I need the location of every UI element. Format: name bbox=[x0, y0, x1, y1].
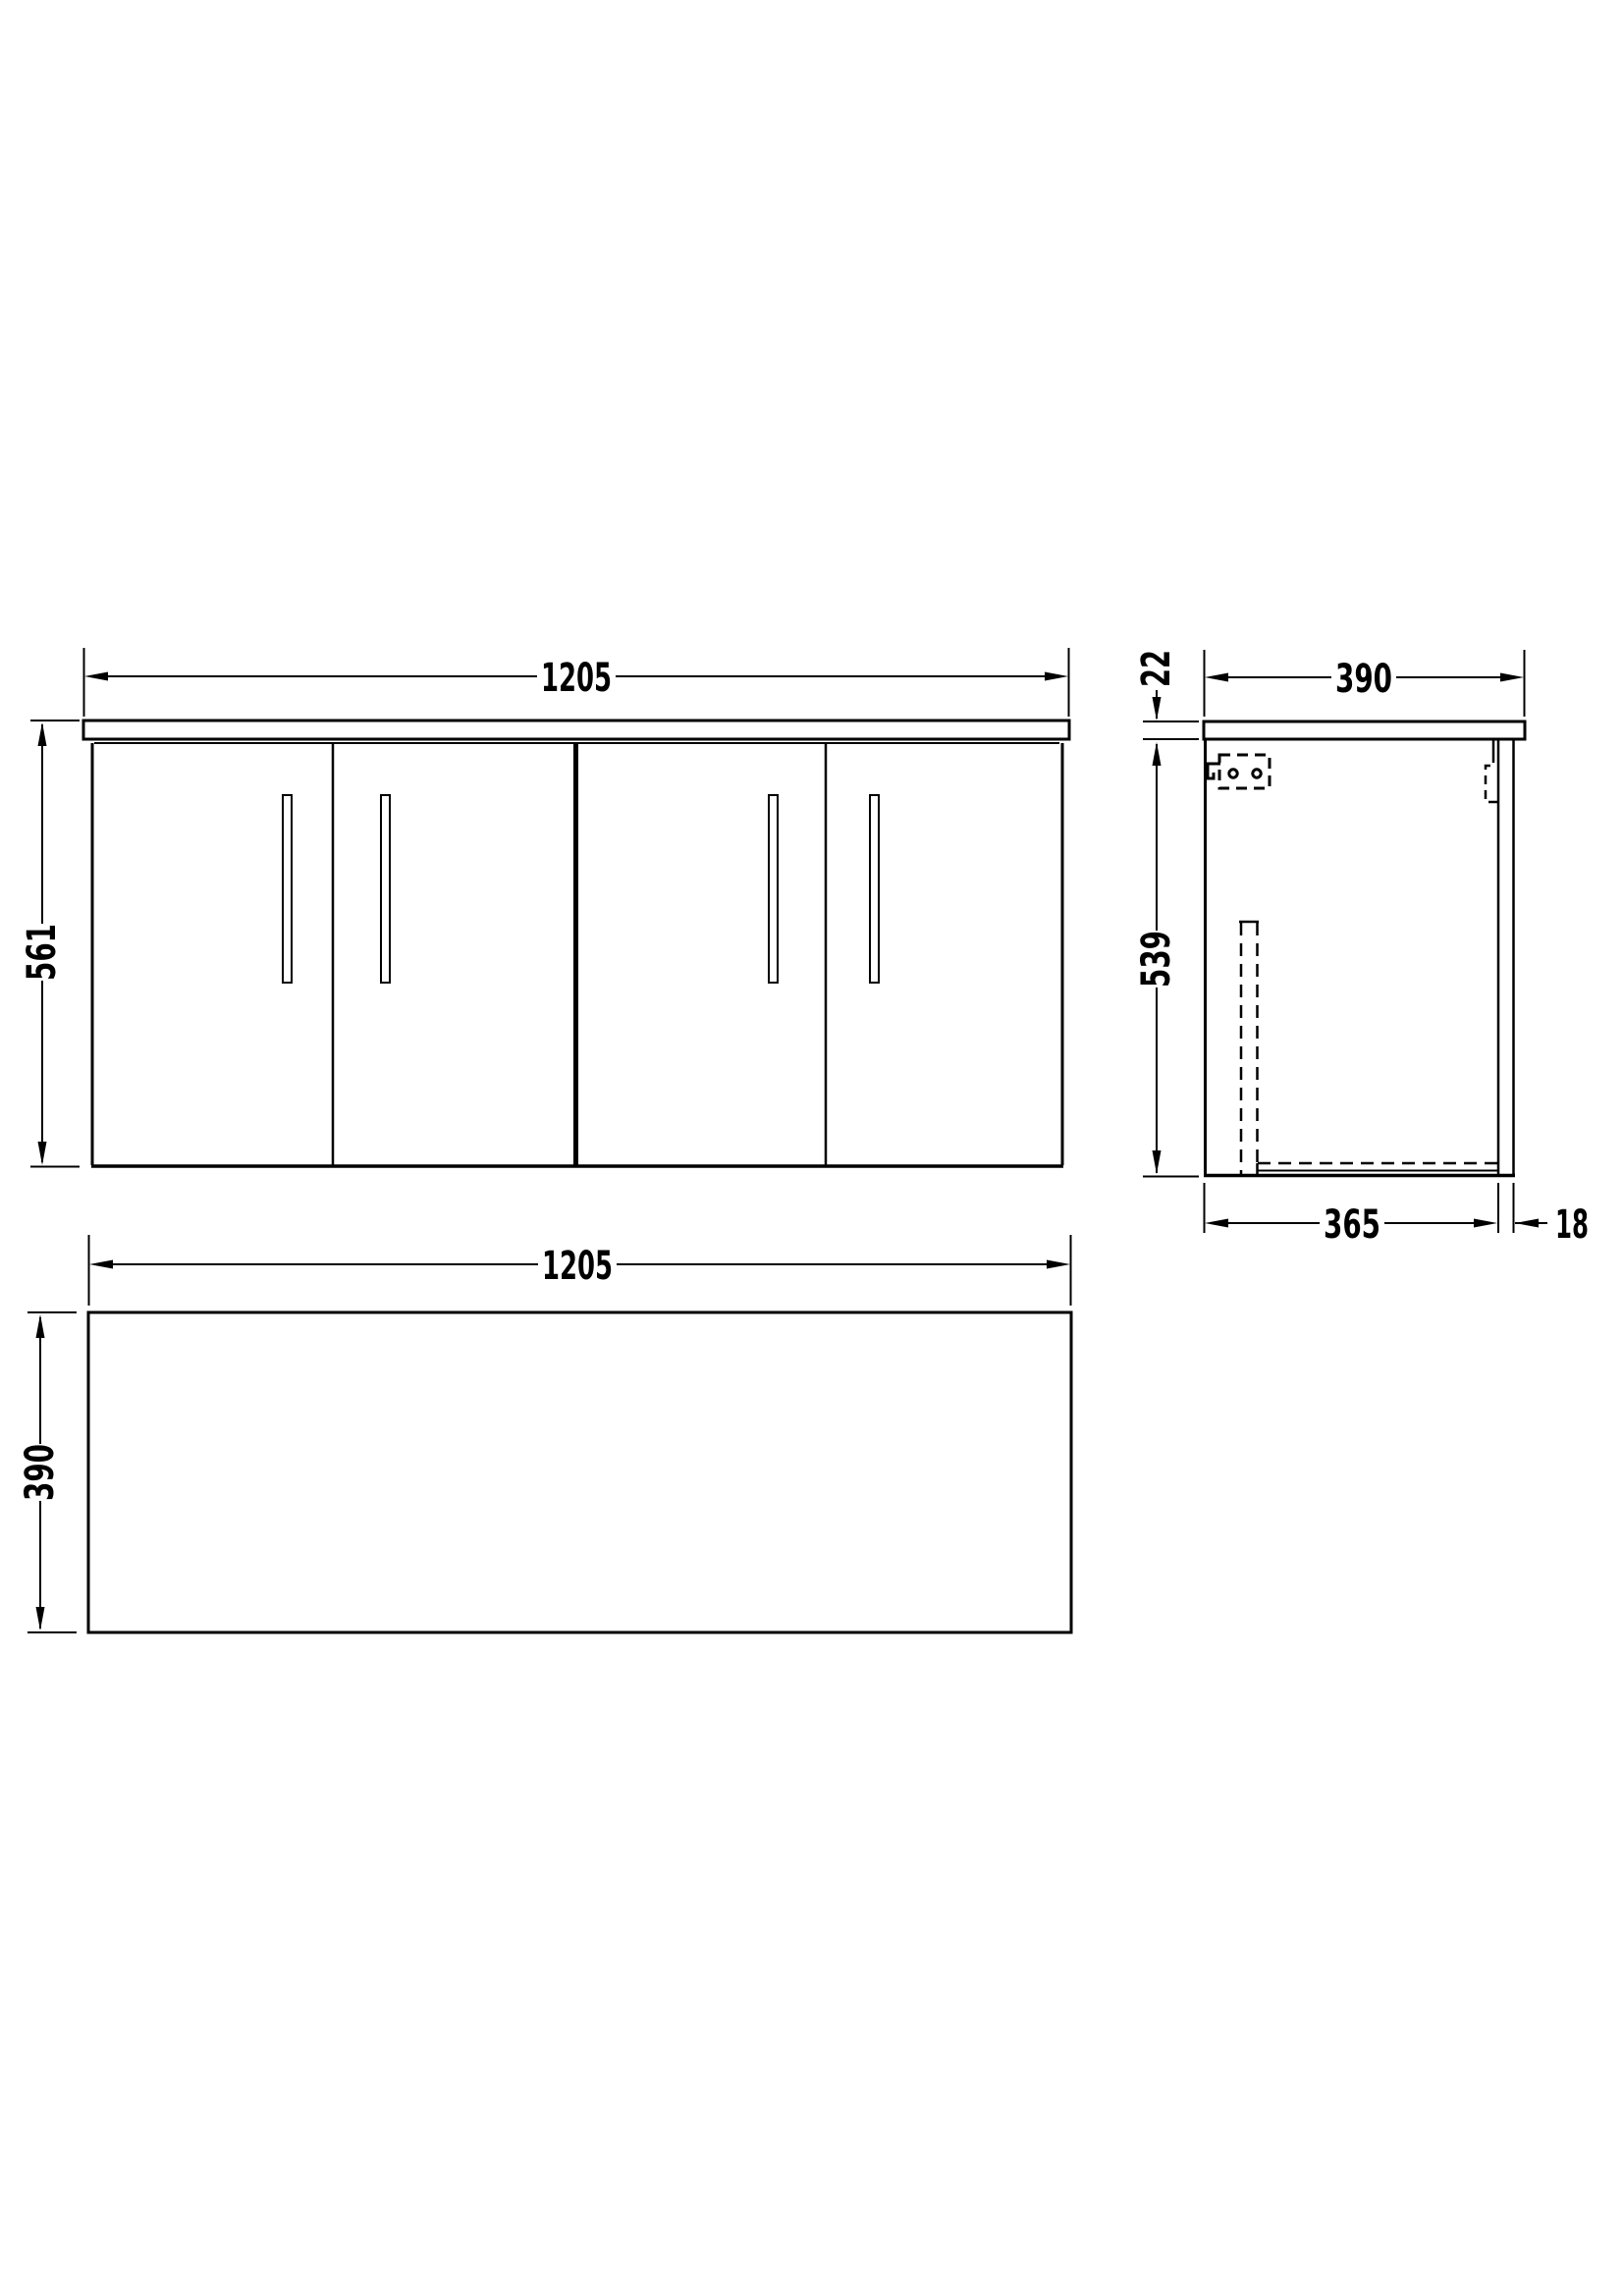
drawing-canvas: 1205 561 bbox=[0, 0, 1623, 2296]
plan-width-dimension: 1205 bbox=[89, 1235, 1071, 1306]
wall-bracket-screw-hole bbox=[1229, 770, 1237, 777]
wall-bracket-screw-hole bbox=[1253, 770, 1261, 777]
arrowhead-down bbox=[38, 1142, 47, 1165]
side-depth-label: 390 bbox=[1335, 657, 1392, 702]
front-width-label: 1205 bbox=[541, 656, 612, 701]
plan-view: 1205 390 bbox=[18, 1235, 1071, 1632]
plan-depth-label: 390 bbox=[18, 1444, 63, 1501]
arrowhead-down bbox=[1153, 1150, 1162, 1174]
technical-drawing-page: 1205 561 bbox=[0, 0, 1623, 2296]
arrowhead-right bbox=[1474, 1219, 1497, 1228]
arrowhead-right bbox=[1045, 672, 1068, 681]
side-worktop-thickness-dimension: 22 bbox=[1134, 650, 1199, 739]
door-handle-1 bbox=[283, 795, 292, 983]
door-handle-3 bbox=[769, 795, 778, 983]
side-height-dimension: 539 bbox=[1134, 742, 1199, 1177]
front-height-dimension: 561 bbox=[20, 721, 80, 1167]
front-height-label: 561 bbox=[20, 924, 65, 981]
carcass-depth-label: 365 bbox=[1324, 1202, 1380, 1248]
wall-bracket-hidden-outline bbox=[1219, 755, 1270, 788]
arrowhead-down bbox=[36, 1607, 45, 1630]
side-depth-dimension: 390 bbox=[1205, 650, 1525, 717]
plan-depth-dimension: 390 bbox=[18, 1312, 77, 1632]
side-height-label: 539 bbox=[1134, 931, 1179, 988]
arrowhead-right bbox=[1500, 673, 1524, 682]
arrowhead-up bbox=[38, 722, 47, 746]
side-worktop bbox=[1204, 721, 1525, 739]
arrowhead-left bbox=[84, 672, 108, 681]
door-handle-4 bbox=[870, 795, 879, 983]
arrowhead-right bbox=[1047, 1260, 1070, 1269]
side-view: 390 22 539 365 bbox=[1134, 650, 1589, 1248]
side-carcass-depth-dimension: 365 bbox=[1205, 1183, 1514, 1248]
plan-worktop-outline bbox=[88, 1312, 1071, 1632]
arrowhead-down bbox=[1153, 697, 1162, 721]
front-worktop bbox=[83, 721, 1069, 739]
back-panel-label: 18 bbox=[1555, 1202, 1589, 1248]
front-width-dimension: 1205 bbox=[84, 648, 1069, 717]
side-back-panel-dimension: 18 bbox=[1515, 1202, 1589, 1248]
arrowhead-left bbox=[1205, 673, 1228, 682]
plan-width-label: 1205 bbox=[542, 1244, 613, 1289]
arrowhead-up bbox=[36, 1314, 45, 1338]
arrowhead-left bbox=[1205, 1219, 1228, 1228]
door-handle-2 bbox=[381, 795, 390, 983]
worktop-thickness-label: 22 bbox=[1134, 650, 1179, 687]
arrowhead-left bbox=[89, 1260, 113, 1269]
front-view: 1205 561 bbox=[20, 648, 1069, 1167]
